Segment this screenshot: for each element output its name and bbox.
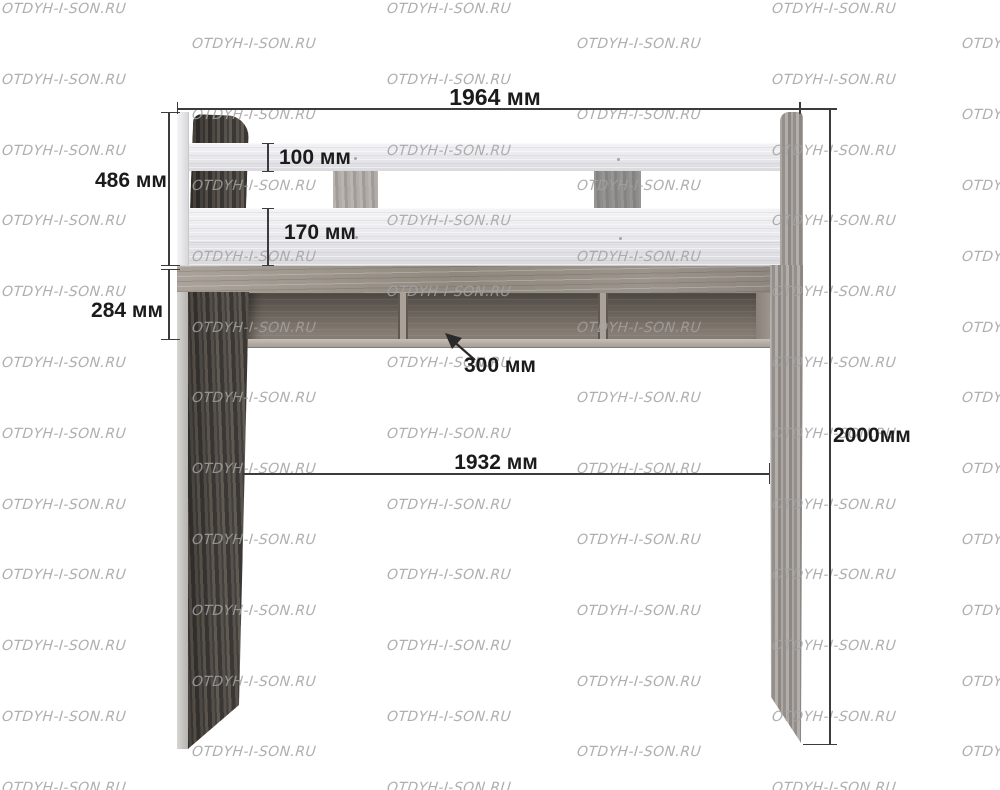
dim-tick xyxy=(262,265,274,266)
dim-tick xyxy=(799,102,801,114)
dim-line-shelf-section xyxy=(168,269,170,339)
dim-tick xyxy=(161,269,180,270)
dim-tick xyxy=(161,112,180,113)
dim-line-total-height xyxy=(829,108,831,745)
dim-label-inner-width: 1932 мм xyxy=(410,452,582,473)
dim-line-rail-section xyxy=(168,112,170,266)
dim-tick xyxy=(262,171,274,172)
furniture-dimension-diagram: OTDYH-I-SON.RUOTDYH-I-SON.RUOTDYH-I-SON.… xyxy=(0,0,1000,790)
dim-line-lower-rail xyxy=(267,208,269,265)
dim-label-shelf-section: 284 мм xyxy=(91,300,163,321)
dim-tick xyxy=(262,208,274,209)
dim-label-top-rail: 100 мм xyxy=(279,147,351,168)
dim-tick xyxy=(769,463,771,484)
dim-label-top-width: 1964 мм xyxy=(400,86,590,109)
dim-tick xyxy=(161,265,180,266)
dim-label-total-height: 2000мм xyxy=(833,425,911,446)
dim-tick xyxy=(262,143,274,144)
dim-label-lower-rail: 170 мм xyxy=(284,222,356,243)
dimension-annotations: 1964 мм 2000мм 486 мм 284 мм 100 мм 170 … xyxy=(0,0,1000,790)
dim-tick xyxy=(161,339,180,340)
dim-tick xyxy=(803,744,837,746)
dim-line-top-rail xyxy=(267,143,269,171)
dim-label-shelf-depth: 300 мм xyxy=(464,355,536,376)
dim-label-rail-section: 486 мм xyxy=(95,170,162,191)
